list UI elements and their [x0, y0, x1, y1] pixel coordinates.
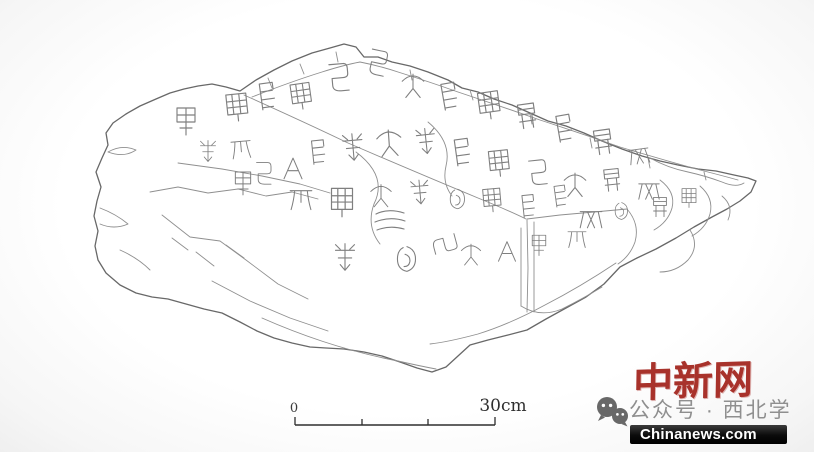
crack-lines: [100, 52, 744, 369]
inscription-glyphs: [177, 49, 696, 271]
scale-bar: 0 30cm: [290, 396, 527, 425]
figure-canvas: 0 30cm 公众号 · 西北学 中新网 Chinanews.com: [0, 0, 814, 452]
scale-bar-ticks: [295, 417, 495, 425]
scale-bar-label-start: 0: [290, 401, 298, 416]
scale-bar-label-end: 30cm: [479, 396, 526, 416]
stone-outline: [94, 44, 756, 372]
stone-line-drawing: 0 30cm: [0, 0, 814, 452]
